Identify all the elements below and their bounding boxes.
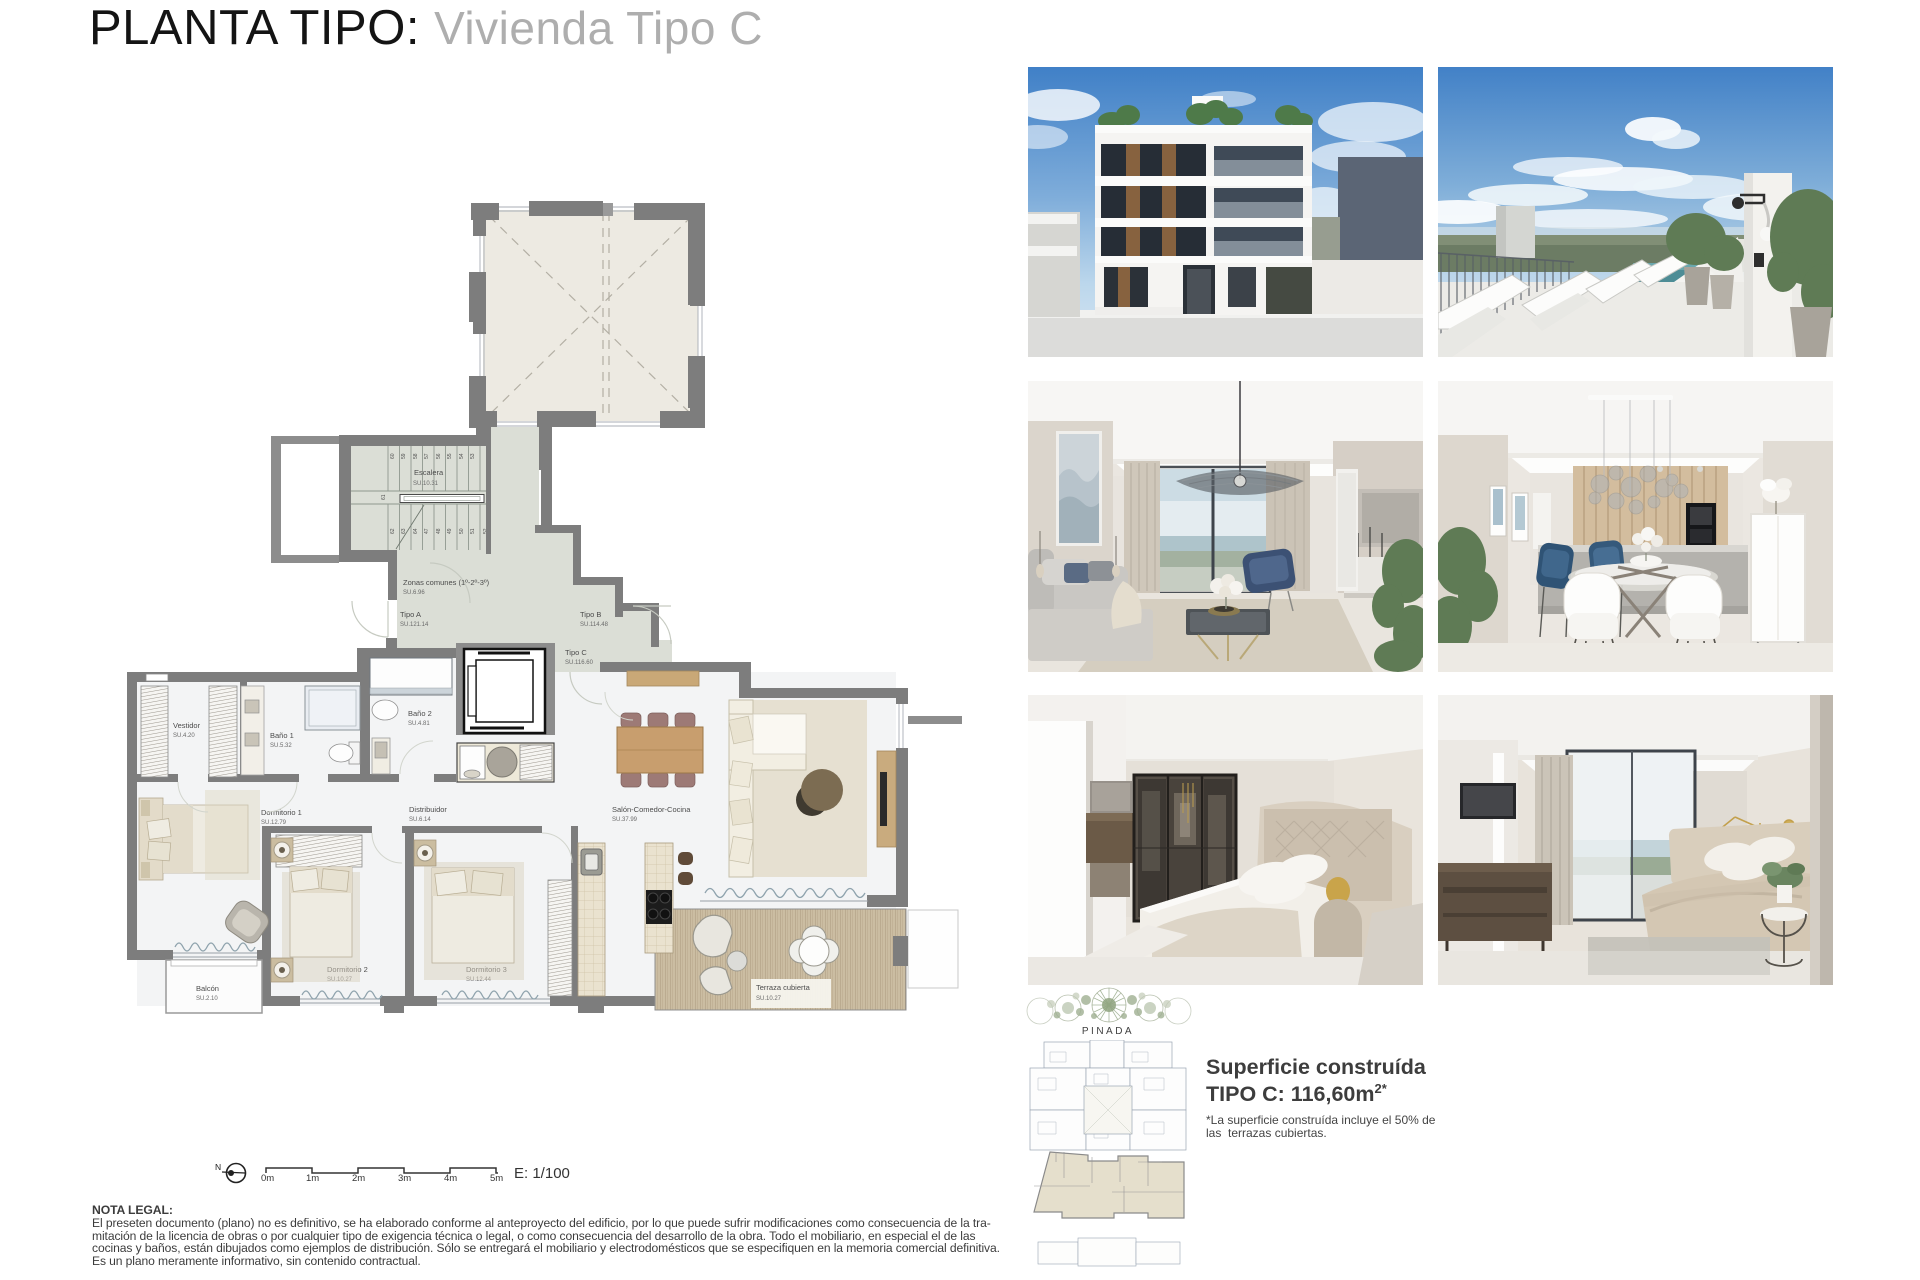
svg-text:SU.114.48: SU.114.48 [580, 622, 609, 628]
svg-text:57: 57 [424, 453, 430, 459]
svg-text:48: 48 [436, 528, 442, 534]
svg-text:N: N [215, 1162, 221, 1172]
svg-text:58: 58 [413, 453, 419, 459]
svg-text:SU.10.31: SU.10.31 [413, 481, 439, 487]
svg-text:Tipo A: Tipo A [400, 610, 421, 619]
svg-text:61: 61 [381, 494, 387, 500]
svg-text:47: 47 [424, 528, 430, 534]
svg-text:SU.5.32: SU.5.32 [270, 743, 292, 749]
svg-text:SU.121.14: SU.121.14 [400, 622, 429, 628]
svg-text:Vestidor: Vestidor [173, 721, 201, 730]
svg-text:3m: 3m [398, 1173, 411, 1184]
svg-text:Baño 1: Baño 1 [270, 731, 294, 740]
svg-text:Tipo B: Tipo B [580, 610, 601, 619]
svg-text:SU.6.14: SU.6.14 [409, 817, 431, 823]
svg-text:63: 63 [401, 528, 407, 534]
svg-text:E: 1/100: E: 1/100 [514, 1165, 570, 1182]
svg-text:62: 62 [390, 528, 396, 534]
svg-text:59: 59 [401, 453, 407, 459]
svg-text:SU.12.79: SU.12.79 [261, 820, 287, 826]
svg-text:Tipo C: Tipo C [565, 648, 587, 657]
svg-text:2m: 2m [352, 1173, 365, 1184]
svg-text:1m: 1m [306, 1173, 319, 1184]
svg-text:SU.2.10: SU.2.10 [196, 996, 218, 1002]
svg-text:SU.6.96: SU.6.96 [403, 590, 425, 596]
svg-text:Distribuidor: Distribuidor [409, 805, 447, 814]
svg-text:54: 54 [459, 453, 465, 459]
svg-text:50: 50 [459, 528, 465, 534]
svg-text:51: 51 [470, 528, 476, 534]
svg-text:Balcón: Balcón [196, 984, 219, 993]
svg-text:Salón-Comedor-Cocina: Salón-Comedor-Cocina [612, 805, 691, 814]
svg-text:Escalera: Escalera [414, 468, 444, 477]
svg-text:56: 56 [436, 453, 442, 459]
svg-text:4m: 4m [444, 1173, 457, 1184]
svg-text:Baño 2: Baño 2 [408, 709, 432, 718]
svg-text:SU.37.99: SU.37.99 [612, 817, 638, 823]
svg-text:5m: 5m [490, 1173, 503, 1184]
svg-text:SU.10.27: SU.10.27 [756, 996, 782, 1002]
svg-text:0m: 0m [261, 1173, 274, 1184]
svg-text:53: 53 [470, 453, 476, 459]
svg-text:60: 60 [390, 453, 396, 459]
svg-text:49: 49 [447, 528, 453, 534]
svg-text:64: 64 [413, 528, 419, 534]
svg-text:55: 55 [447, 453, 453, 459]
svg-text:Zonas comunes (1º-2º-3º): Zonas comunes (1º-2º-3º) [403, 578, 490, 587]
svg-text:Terraza cubierta: Terraza cubierta [756, 983, 811, 992]
svg-text:SU.116.60: SU.116.60 [565, 660, 594, 666]
svg-text:Dormitorio 1: Dormitorio 1 [261, 808, 302, 817]
svg-text:SU.4.81: SU.4.81 [408, 721, 430, 727]
svg-text:SU.4.20: SU.4.20 [173, 733, 195, 739]
